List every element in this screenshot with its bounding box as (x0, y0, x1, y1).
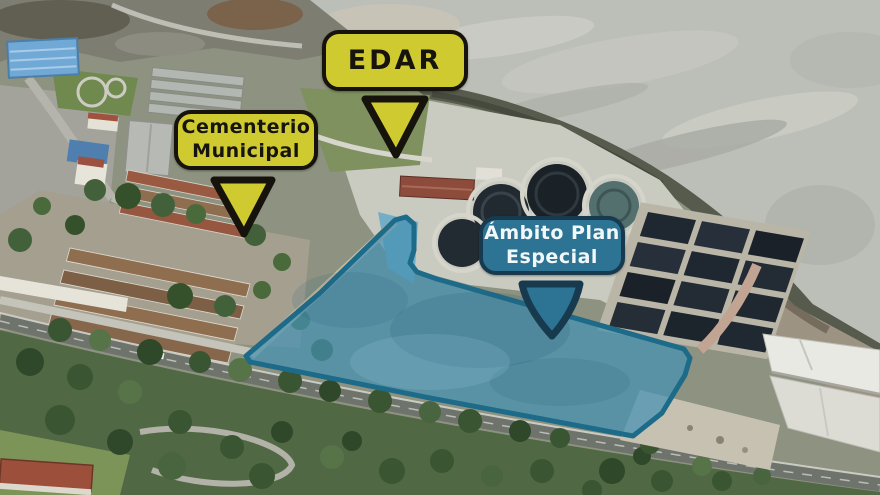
cementerio-label-line1: Cementerio (182, 116, 311, 140)
cementerio-pointer-triangle-icon (203, 172, 283, 242)
cementerio-label-box: Cementerio Municipal (174, 110, 318, 170)
ambito-label-line2: Especial (506, 246, 598, 270)
cementerio-label-line2: Municipal (192, 140, 300, 164)
ambito-label-box: Ámbito Plan Especial (479, 216, 625, 275)
edar-label-box: EDAR (322, 30, 468, 91)
edar-label: EDAR (348, 44, 443, 78)
ambito-pointer-triangle-icon (512, 276, 590, 344)
edar-pointer-triangle-icon (353, 90, 437, 164)
annotated-aerial-image: EDAR Cementerio Municipal Ámbito Plan Es… (0, 0, 880, 495)
ambito-label-line1: Ámbito Plan (484, 222, 620, 246)
